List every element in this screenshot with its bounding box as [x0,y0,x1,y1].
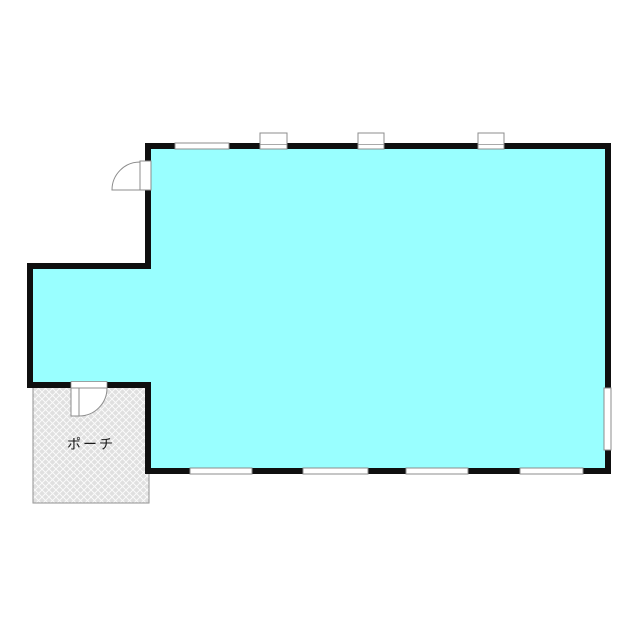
window-bottom-3 [406,468,468,474]
vent-box-2 [358,133,384,149]
vent-box-1 [260,133,287,149]
door-leaf-left [140,161,151,190]
door-swing-arc-left [112,162,140,190]
door-leaf-porch [71,388,79,416]
vent-box-3 [478,133,504,149]
window-right [604,388,611,450]
floorplan-page: ポーチ [0,0,639,640]
window-bottom-4 [520,468,583,474]
entry-door-left [112,161,151,190]
door-opening-porch [71,382,107,389]
window-top [175,143,229,149]
window-bottom-1 [190,468,252,474]
window-bottom-2 [303,468,368,474]
porch-label: ポーチ [67,437,115,453]
floorplan-drawing: ポーチ [0,0,639,640]
